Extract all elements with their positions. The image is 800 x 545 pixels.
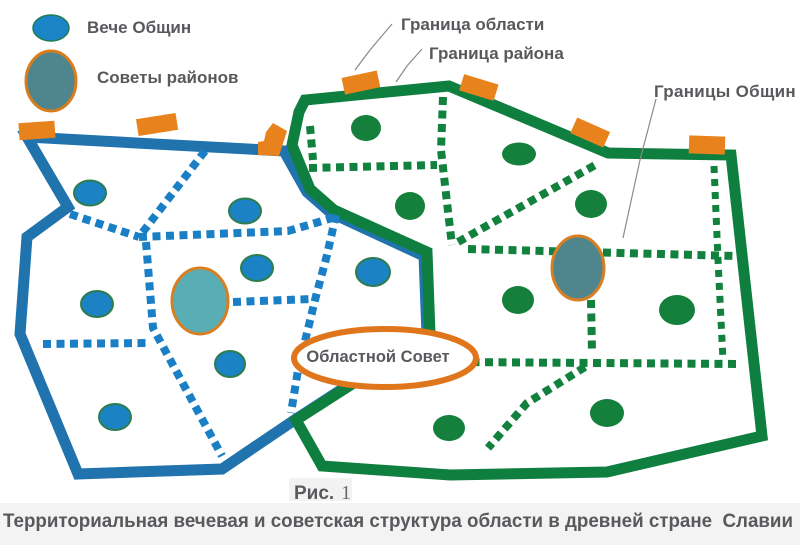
svg-text:Граница области: Граница области [401,15,544,34]
svg-text:Граница района: Граница района [429,44,564,63]
svg-text:1: 1 [341,482,351,504]
svg-text:Границы Общин: Границы Общин [654,82,796,101]
svg-text:Рис.: Рис. [294,483,334,504]
svg-text:Территориальная вечевая и сове: Территориальная вечевая и советская стру… [3,511,793,532]
svg-text:Областной Совет: Областной Совет [306,348,449,366]
svg-text:Вече Общин: Вече Общин [87,18,191,37]
svg-text:Советы районов: Советы районов [97,68,238,87]
